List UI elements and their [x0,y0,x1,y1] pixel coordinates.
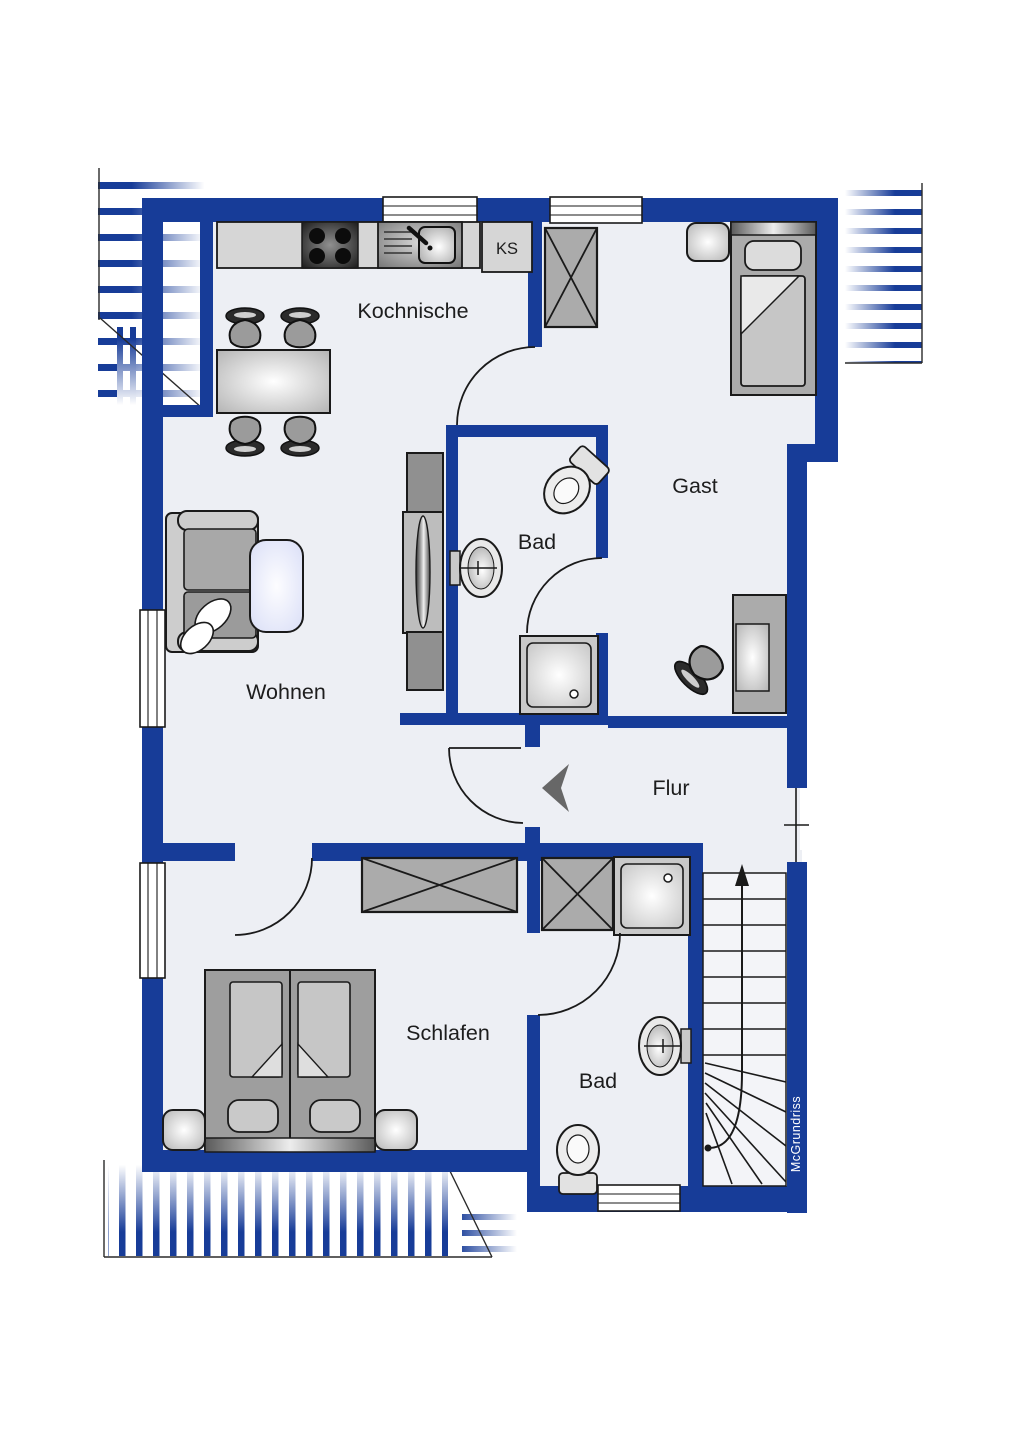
wall-segment [527,861,540,933]
wall-segment [446,425,608,437]
floor-plan-page: KS [0,0,1018,1440]
nightstand-icon [687,223,729,261]
sink-icon [378,222,462,268]
room-label-bad-upper: Bad [518,530,556,554]
wall-segment [525,725,540,747]
window [598,1185,680,1211]
pillow [228,1100,278,1132]
wall-segment [608,716,790,728]
window [383,197,477,223]
wall-segment [525,827,540,845]
fridge-icon: KS [482,222,532,272]
single-bed-icon [731,222,816,395]
pillow [745,241,801,270]
room-label-wohnen: Wohnen [246,680,326,704]
wardrobe-icon [545,228,597,327]
tv-sideboard-icon [403,453,443,690]
room-label-bad-lower: Bad [579,1069,617,1093]
fridge-label: KS [496,240,518,258]
double-bed-icon [205,970,375,1152]
wall-segment [142,198,838,222]
coffee-table-icon [250,540,303,632]
roof-hatch-top-right [845,183,922,363]
nightstand-icon [163,1110,205,1150]
wall-segment [142,843,235,861]
desk-icon [733,595,786,713]
floor-plan-canvas: KS [0,0,1018,1440]
room-label-kochnische: Kochnische [357,299,468,323]
wall-segment [815,198,838,462]
wall-segment [142,1150,540,1172]
wall-segment [596,425,608,558]
wardrobe-icon [362,858,517,912]
watermark-text: McGrundriss [789,1096,803,1172]
closet-icon [542,858,613,930]
window [550,197,642,223]
pillow [310,1100,360,1132]
wall-segment [200,215,213,417]
shower-icon [520,636,598,714]
roof-edge-diagonal [448,1167,492,1257]
chair-icon [281,417,319,456]
dining-table-icon [217,350,330,413]
shower-icon [614,857,690,935]
window [140,610,165,727]
kitchen-counter-icon: KS [217,222,532,272]
wall-segment [787,444,807,788]
room-label-gast: Gast [672,474,717,498]
wall-segment [527,1015,540,1186]
chair-icon [226,308,264,347]
tv-icon [416,516,430,628]
stove-icon [302,222,358,268]
nightstand-icon [375,1110,417,1150]
room-label-flur: Flur [652,776,689,800]
window [140,863,165,978]
stairs-icon [703,864,786,1186]
room-label-schlafen: Schlafen [406,1021,490,1045]
toilet-icon [557,1125,599,1194]
chair-icon [281,308,319,347]
sofa-icon [166,511,258,660]
wall-segment [163,405,213,417]
chair-icon [226,417,264,456]
roof-hatch-bottom [104,1160,517,1257]
